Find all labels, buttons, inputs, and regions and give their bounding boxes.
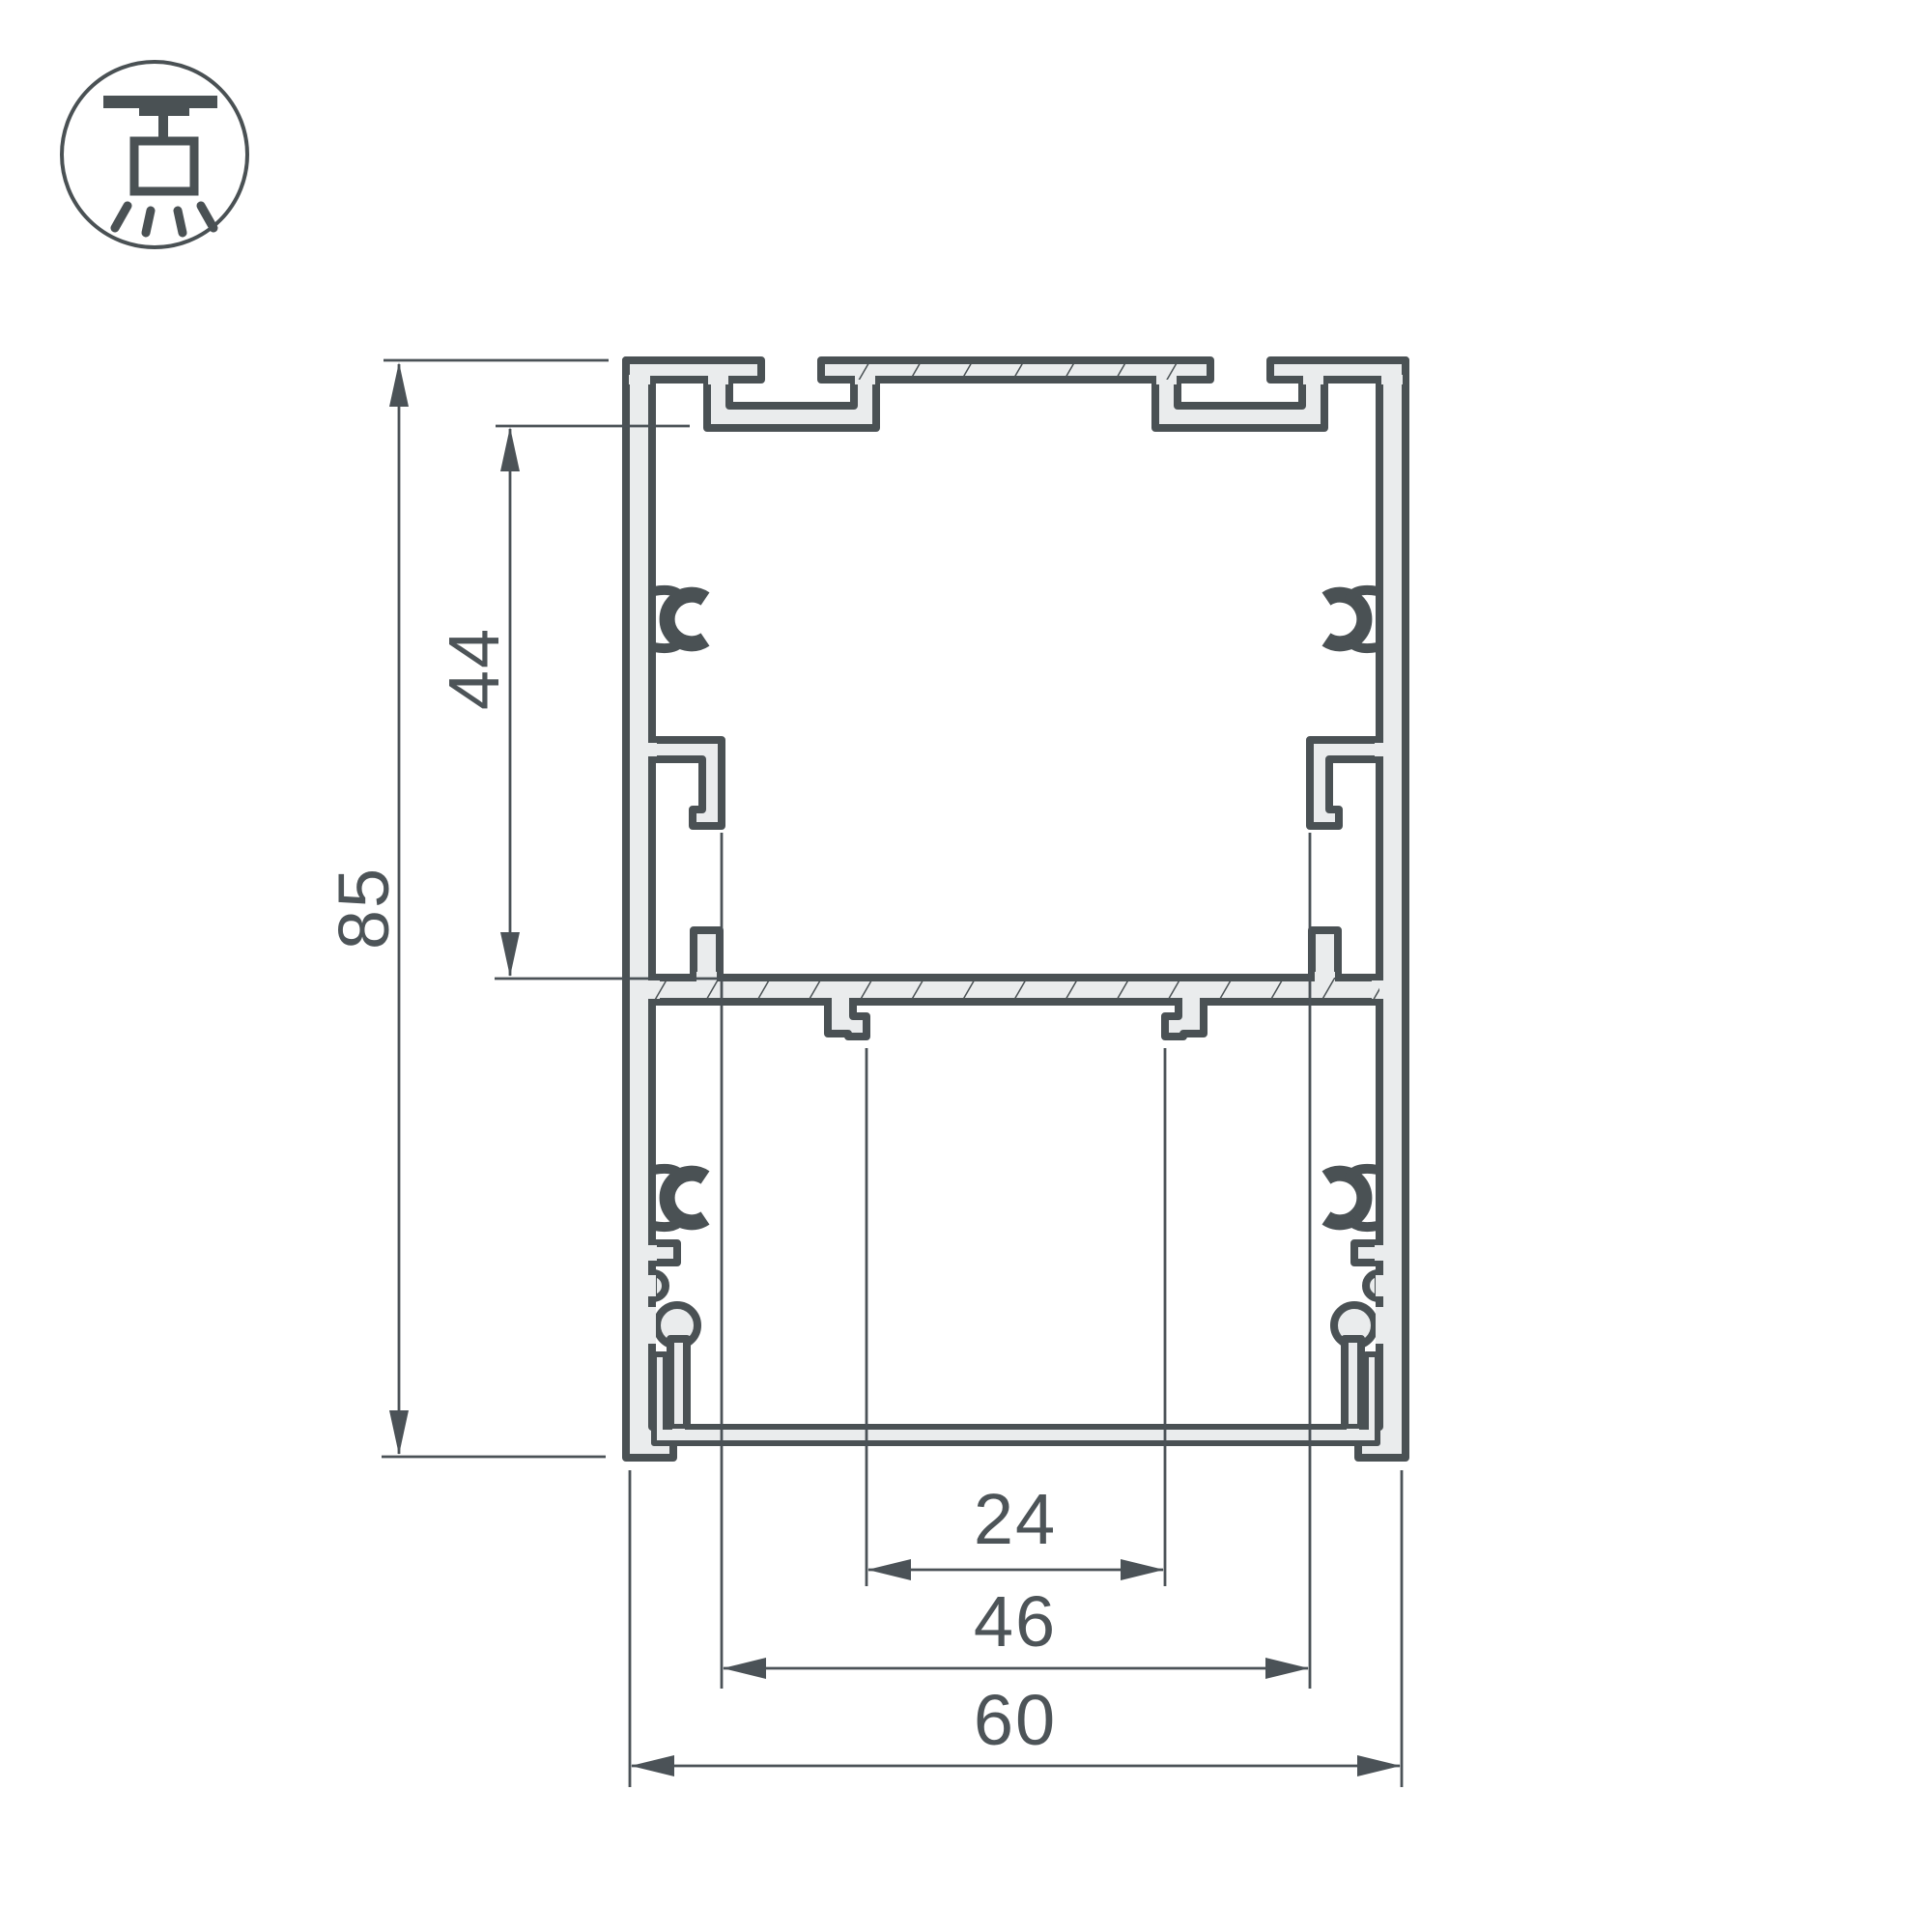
diffuser-plate <box>666 1427 1367 1443</box>
dim-label-44: 44 <box>434 627 514 710</box>
pendant-ceiling-mount-icon <box>62 62 247 247</box>
junction-patches <box>644 375 1387 1440</box>
icon-ceiling-bar <box>103 96 217 108</box>
profile-left-half <box>626 360 876 1458</box>
profile-cross-section-drawing: 85 44 24 46 60 <box>0 0 1932 1932</box>
hatch-overlay <box>0 0 1932 1932</box>
dimension-annotations: 85 44 24 46 60 <box>324 360 1402 1787</box>
profile-right-half <box>1155 360 1406 1458</box>
dim-24 <box>867 1559 1164 1580</box>
icon-light-rays <box>115 206 213 233</box>
icon-lamp-body <box>134 141 194 191</box>
dim-label-24: 24 <box>974 1479 1057 1559</box>
dim-label-85: 85 <box>324 867 404 950</box>
drawing-canvas: 85 44 24 46 60 <box>0 0 1932 1932</box>
dim-label-46: 46 <box>974 1581 1057 1662</box>
dim-label-60: 60 <box>974 1680 1057 1760</box>
